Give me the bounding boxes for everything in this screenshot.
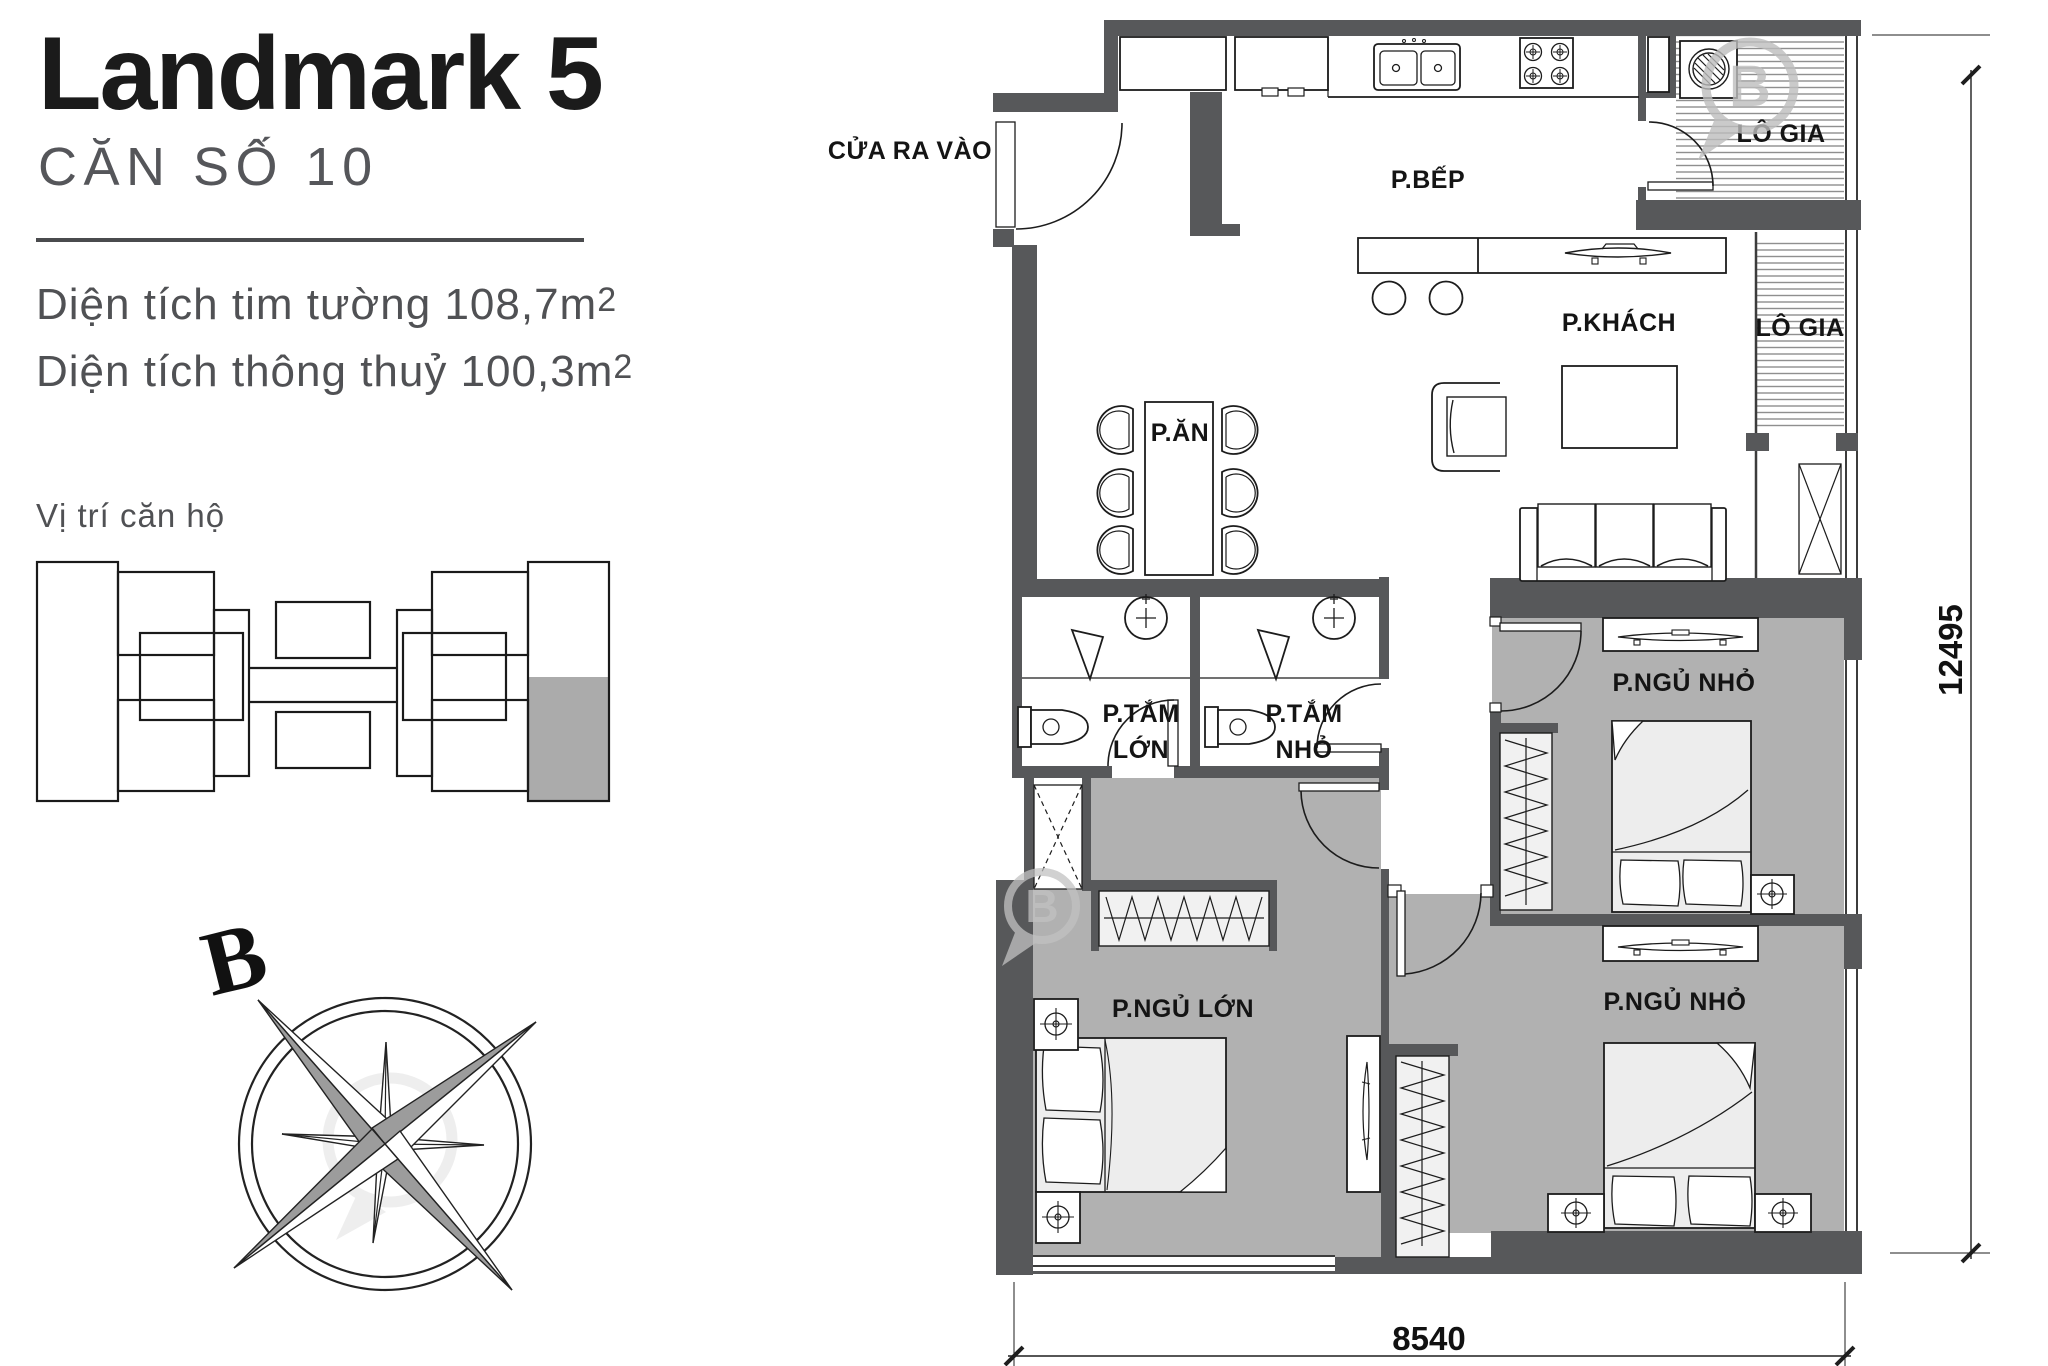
svg-text:CỬA RA VÀO: CỬA RA VÀO: [828, 135, 992, 165]
svg-text:12495: 12495: [1932, 604, 1969, 696]
svg-text:P.KHÁCH: P.KHÁCH: [1562, 308, 1676, 337]
svg-text:CĂN SỐ 10: CĂN SỐ 10: [38, 137, 379, 197]
svg-text:8540: 8540: [1392, 1320, 1465, 1357]
svg-text:LỚN: LỚN: [1113, 734, 1169, 764]
svg-text:Diện tích thông thuỷ 100,3m2: Diện tích thông thuỷ 100,3m2: [36, 347, 633, 396]
svg-text:P.ĂN: P.ĂN: [1151, 418, 1210, 447]
svg-text:P.NGỦ NHỎ: P.NGỦ NHỎ: [1613, 667, 1756, 697]
svg-text:P.TẮM: P.TẮM: [1265, 698, 1342, 728]
svg-text:P.NGỦ LỚN: P.NGỦ LỚN: [1112, 993, 1254, 1023]
svg-text:B: B: [1025, 880, 1058, 932]
svg-text:Diện tích tim tường 108,7m2: Diện tích tim tường 108,7m2: [36, 280, 617, 329]
svg-text:Vị trí căn hộ: Vị trí căn hộ: [36, 497, 225, 534]
svg-text:B: B: [1729, 54, 1771, 119]
svg-text:P.TẮM: P.TẮM: [1102, 698, 1179, 728]
svg-text:P.NGỦ NHỎ: P.NGỦ NHỎ: [1604, 986, 1747, 1016]
svg-text:NHỎ: NHỎ: [1275, 734, 1332, 764]
svg-text:P.BẾP: P.BẾP: [1391, 165, 1465, 194]
svg-text:Landmark 5: Landmark 5: [38, 16, 602, 132]
svg-text:LÔ GIA: LÔ GIA: [1755, 312, 1844, 342]
